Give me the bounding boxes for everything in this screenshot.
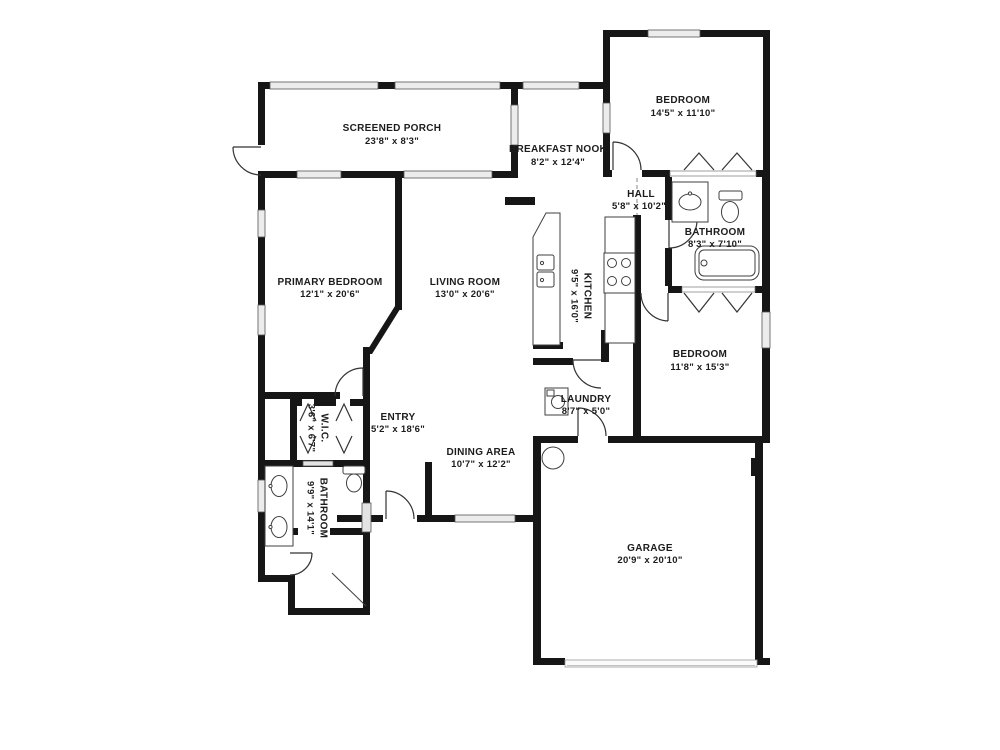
room-label-entry: ENTRY [380, 412, 415, 423]
room-dims-entry: 5'2" x 18'6" [371, 424, 425, 435]
toilet-tank-icon [719, 191, 742, 200]
garage-door [565, 660, 757, 667]
island-faucet-icon [540, 278, 543, 281]
room-label-garage: GARAGE [627, 543, 673, 554]
room-dims-garage: 20'9" x 20'10" [617, 555, 682, 566]
room-dims-bedroom-top: 14'5" x 11'10" [651, 108, 716, 119]
room-dims-bedroom-right: 11'8" x 15'3" [670, 362, 729, 373]
room-label-bedroom-top: BEDROOM [656, 95, 710, 106]
sliding-glass-door [404, 171, 492, 178]
island-faucet-icon [540, 261, 543, 264]
room-label-primary-bathroom: BATHROOM [318, 478, 329, 539]
faucet-icon [269, 484, 272, 487]
room-label-breakfast-nook: BREAKFAST NOOK [509, 144, 608, 155]
closet-track [682, 287, 755, 292]
room-label-hall: HALL [627, 189, 655, 200]
room-dims-primary-bathroom: 9'9" x 14'1" [305, 481, 316, 535]
room-dims-kitchen: 9'5" x 16'0" [569, 269, 580, 323]
room-dims-primary-bedroom: 12'1" x 20'6" [300, 289, 360, 300]
toilet-bowl-icon [347, 474, 362, 492]
window [258, 305, 265, 335]
door-water-closet [290, 553, 312, 575]
toilet-bowl-icon [722, 202, 739, 223]
room-label-kitchen: KITCHEN [582, 273, 593, 320]
stove-icon [604, 253, 635, 293]
bifold-bedroom-top-closet [684, 153, 752, 170]
window [258, 210, 265, 237]
room-dims-breakfast-nook: 8'2" x 12'4" [531, 157, 585, 168]
door-bedroom-top [613, 142, 641, 170]
burner-icon [622, 277, 631, 286]
water-heater-icon [542, 447, 564, 469]
room-label-laundry: LAUNDRY [561, 394, 612, 405]
faucet-icon [688, 192, 691, 195]
vanity-sink-icon [271, 476, 287, 497]
door-bedroom-right [641, 293, 668, 321]
bifold-bedroom-right-closet [684, 293, 752, 312]
toilet-tank-icon [343, 466, 365, 474]
tub-faucet-icon [701, 260, 707, 266]
room-dims-laundry: 8'7" x 5'0" [562, 406, 611, 417]
sink-icon [679, 194, 701, 210]
room-dims-wic: 3'6" x 6'7" [306, 404, 317, 453]
window [297, 171, 341, 178]
pocket-door [362, 503, 371, 532]
window [511, 105, 518, 145]
island-sink-basin [537, 255, 554, 270]
washer-panel-icon [547, 390, 554, 396]
burner-icon [622, 259, 631, 268]
room-label-bedroom-right: BEDROOM [673, 349, 727, 360]
room-dims-screened-porch: 23'8" x 8'3" [365, 136, 419, 147]
window [395, 82, 500, 89]
window [258, 480, 265, 512]
vanity-sink-icon [271, 517, 287, 538]
door-front-entry [386, 491, 414, 519]
room-label-screened-porch: SCREENED PORCH [343, 123, 442, 134]
window [648, 30, 700, 37]
room-label-living-room: LIVING ROOM [430, 277, 501, 288]
room-dims-hall-bathroom: 8'3" x 7'10" [688, 239, 742, 250]
room-dims-dining-area: 10'7" x 12'2" [451, 459, 511, 470]
shower-icon [332, 573, 366, 606]
window [270, 82, 378, 89]
door-porch-exterior [233, 147, 261, 175]
room-label-primary-bedroom: PRIMARY BEDROOM [277, 277, 382, 288]
burner-icon [608, 277, 617, 286]
burner-icon [608, 259, 617, 268]
cased-opening [303, 461, 333, 466]
window [762, 312, 770, 348]
window [455, 515, 515, 522]
door-kitchen-laundry [573, 360, 601, 388]
room-dims-hall: 5'8" x 10'2" [612, 201, 666, 212]
faucet-icon [269, 525, 272, 528]
room-label-dining-area: DINING AREA [446, 447, 515, 458]
closet-track [670, 171, 756, 176]
door-primary-bedroom [335, 368, 363, 396]
room-label-wic: W.I.C. [319, 413, 330, 442]
room-dims-living-room: 13'0" x 20'6" [435, 289, 495, 300]
window [603, 103, 610, 133]
window [523, 82, 579, 89]
room-label-hall-bathroom: BATHROOM [685, 227, 746, 238]
floor-plan: SCREENED PORCH 23'8" x 8'3" BREAKFAST NO… [0, 0, 1000, 750]
island-sink-basin [537, 272, 554, 287]
floor-plan-page: SCREENED PORCH 23'8" x 8'3" BREAKFAST NO… [0, 0, 1000, 750]
